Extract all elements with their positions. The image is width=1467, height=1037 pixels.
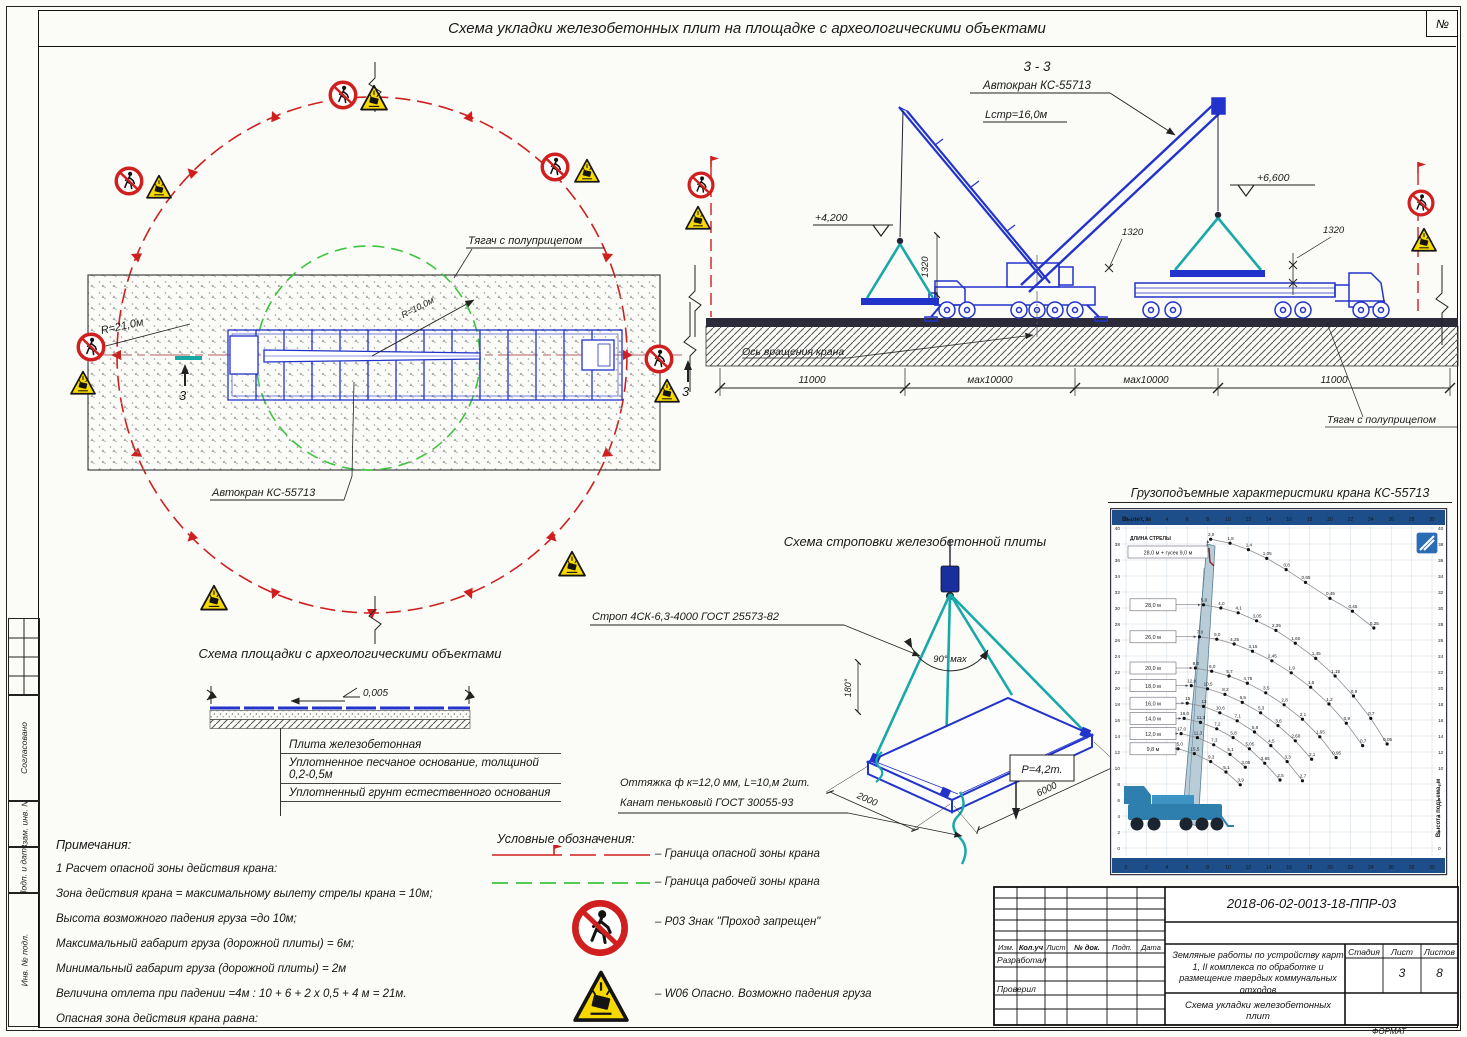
svg-text:0,95: 0,95: [1332, 750, 1341, 755]
svg-text:14: 14: [1266, 865, 1272, 871]
svg-text:2: 2: [1145, 865, 1148, 871]
svg-text:8: 8: [1206, 517, 1209, 523]
svg-text:20: 20: [1327, 865, 1333, 871]
note-item: Зона действия крана = максимальному выле…: [56, 888, 433, 913]
svg-text:3,15: 3,15: [1249, 644, 1258, 649]
truck-plan-label: Тягач с полуприцепом: [468, 235, 583, 247]
svg-text:+6,600: +6,600: [1257, 172, 1290, 184]
spreader-beam-right: [1170, 270, 1265, 277]
falling-load-sign: [575, 973, 627, 1021]
svg-text:2,5: 2,5: [1277, 773, 1284, 778]
svg-text:10,5: 10,5: [1204, 682, 1213, 687]
falling-load-sign: [147, 176, 171, 198]
svg-text:28,0 м: 28,0 м: [1145, 603, 1161, 609]
svg-text:12: 12: [1115, 750, 1121, 756]
svg-text:1,45: 1,45: [1312, 651, 1321, 656]
svg-text:1320: 1320: [1323, 225, 1345, 236]
svg-text:0: 0: [1125, 517, 1128, 523]
svg-text:0,8: 0,8: [1283, 562, 1290, 567]
crane-elevation: [899, 98, 1225, 321]
legend-item-fall: – W06 Опасно. Возможно падения груза: [655, 988, 872, 1000]
svg-text:18: 18: [1438, 702, 1444, 708]
soil-layer: [210, 720, 470, 729]
sheet-label: Лист: [1383, 947, 1421, 957]
svg-text:2,45: 2,45: [1268, 654, 1277, 659]
svg-text:1,60: 1,60: [1291, 636, 1300, 641]
svg-text:6,5: 6,5: [1240, 695, 1247, 700]
svg-text:6,0: 6,0: [1209, 664, 1216, 669]
chart-logo-icon: [1416, 532, 1438, 554]
svg-text:16: 16: [1438, 718, 1444, 724]
hoist-line-left: [900, 111, 903, 237]
danger-tick: [602, 249, 615, 262]
dim-6000-label: 6000: [1035, 780, 1059, 799]
svg-text:2,1: 2,1: [1309, 752, 1316, 757]
legend-item-work: – Граница рабочей зоны крана: [655, 876, 820, 888]
layer-slab: Плита железобетонная: [281, 736, 561, 754]
load-chart: Вылет, м ДЛИНА СТРЕЛЫ Высота подъема, м …: [1110, 508, 1448, 876]
svg-text:1320: 1320: [920, 256, 931, 278]
semitrailer-elevation: [1135, 273, 1389, 318]
truck-elev-label: Тягач с полуприцепом: [1327, 414, 1436, 426]
svg-text:18,0 м: 18,0 м: [1145, 684, 1161, 690]
falling-load-sign: [1412, 229, 1436, 251]
svg-text:12,0 м: 12,0 м: [1145, 732, 1161, 738]
svg-text:14: 14: [1266, 517, 1272, 523]
end-mark-left: [207, 686, 211, 704]
slope-mark: 0,005: [291, 688, 388, 701]
svg-text:5,1: 5,1: [1223, 765, 1230, 770]
note-item: Высота возможного падения груза =до 10м;: [56, 913, 433, 938]
sidebar-item-inv-podl: Инв. № подл.: [8, 892, 40, 1027]
svg-text:1,9: 1,9: [1289, 666, 1296, 671]
svg-text:9,3: 9,3: [1208, 754, 1215, 759]
svg-text:24: 24: [1438, 654, 1444, 660]
svg-text:15: 15: [1185, 696, 1191, 701]
guy-label: Оттяжка ф к=12,0 мм, L=10,м 2шт.: [620, 777, 810, 789]
danger-tick: [184, 531, 198, 545]
sidebar-item-soglasovano: Согласовано: [8, 694, 40, 802]
svg-text:22: 22: [1115, 670, 1121, 676]
svg-text:7,1: 7,1: [1234, 714, 1241, 719]
svg-text:0,45: 0,45: [1326, 591, 1335, 596]
developed-label: Разработал: [997, 955, 1047, 965]
svg-text:32: 32: [1115, 590, 1121, 596]
svg-text:12,0: 12,0: [1187, 678, 1196, 683]
chart-footer-bar: [1112, 858, 1445, 873]
svg-text:20,0 м: 20,0 м: [1145, 666, 1161, 672]
sling-angle-label: 90° мах: [933, 654, 968, 665]
svg-text:0,7: 0,7: [1360, 738, 1367, 743]
svg-text:14: 14: [1438, 734, 1444, 740]
svg-text:мах10000: мах10000: [967, 375, 1013, 386]
sidebar-item-podp-data: Подп. и дата: [8, 846, 40, 894]
rope-label: Канат пеньковый ГОСТ 30055-93: [620, 797, 794, 809]
number-label: №: [1436, 17, 1449, 31]
svg-text:2,1: 2,1: [1300, 712, 1307, 717]
number-box: №: [1426, 11, 1458, 37]
svg-text:2,60: 2,60: [1291, 734, 1300, 739]
svg-text:1,05: 1,05: [1263, 551, 1272, 556]
svg-text:11000: 11000: [1320, 375, 1348, 386]
svg-text:4,1: 4,1: [1236, 606, 1243, 611]
sand-layer: [210, 711, 470, 720]
svg-text:26: 26: [1388, 865, 1394, 871]
svg-text:10,6: 10,6: [1216, 706, 1225, 711]
svg-text:38: 38: [1115, 542, 1121, 548]
svg-text:22: 22: [1348, 865, 1354, 871]
elevation-mark-right: +6,600: [1230, 172, 1315, 196]
elev-crane-label: Автокран КС-55713: [982, 80, 1092, 92]
section-title: 3 - 3: [1023, 59, 1051, 74]
svg-text:26: 26: [1388, 517, 1394, 523]
no-walk-sign: [575, 903, 624, 952]
sheet-title-band: Схема укладки железобетонных плит на пло…: [38, 10, 1456, 47]
svg-text:30: 30: [1429, 865, 1435, 871]
col-ndok: № док.: [1067, 943, 1107, 952]
page-title: Схема укладки железобетонных плит на пло…: [448, 20, 1046, 37]
col-podp: Подп.: [1107, 943, 1137, 952]
layer-sand: Уплотненное песчаное основание, толщиной…: [281, 754, 561, 784]
svg-text:4,75: 4,75: [1243, 676, 1252, 681]
sidebar-item-vzam-inv: Взам. инв. №: [8, 800, 40, 848]
svg-text:5,8: 5,8: [1230, 730, 1237, 735]
danger-tick: [546, 531, 560, 545]
stage-label: Стадия: [1345, 947, 1383, 957]
svg-text:5,7: 5,7: [1226, 669, 1233, 674]
hook-block: [941, 566, 959, 592]
svg-text:+4,200: +4,200: [815, 212, 848, 224]
no-walk-sign: [78, 334, 104, 360]
svg-text:1,2: 1,2: [1326, 697, 1333, 702]
doc-number: 2018-06-02-0013-18-ППР-03: [1165, 896, 1458, 911]
falling-load-sign: [559, 552, 585, 576]
svg-text:12: 12: [1246, 865, 1252, 871]
svg-text:7,3: 7,3: [1211, 738, 1218, 743]
svg-text:1,4: 1,4: [1246, 542, 1253, 547]
svg-text:P=4,2т.: P=4,2т.: [1021, 764, 1062, 776]
svg-text:0: 0: [1117, 846, 1120, 852]
elevation-view: 3 - 3 Автокран КС-55713 Lстр=16,0м +4,20…: [685, 55, 1462, 445]
svg-text:16,0: 16,0: [1180, 711, 1189, 716]
svg-text:18: 18: [1115, 702, 1121, 708]
svg-text:4,5: 4,5: [1268, 738, 1275, 743]
svg-text:40: 40: [1115, 526, 1121, 532]
falling-load-sign: [575, 160, 599, 182]
sheet-number: 3: [1383, 966, 1421, 980]
col-data: Дата: [1137, 943, 1165, 952]
svg-text:3,3: 3,3: [1284, 754, 1291, 759]
svg-text:24: 24: [1368, 517, 1374, 523]
note-item: Опасная зона действия крана равна:: [56, 1013, 433, 1037]
svg-text:14: 14: [1115, 734, 1121, 740]
svg-text:0,9: 0,9: [1344, 716, 1351, 721]
svg-text:0: 0: [1438, 846, 1441, 852]
danger-tick: [463, 588, 476, 601]
notes-title: Примечания:: [56, 838, 433, 863]
svg-text:5,8: 5,8: [1252, 725, 1259, 730]
svg-text:3,65: 3,65: [1261, 756, 1270, 761]
boom-caption: ДЛИНА СТРЕЛЫ: [1130, 536, 1171, 542]
project-name: Земляные работы по устройству карт 1, II…: [1172, 950, 1344, 997]
svg-text:8,0: 8,0: [1193, 661, 1200, 666]
svg-text:36: 36: [1438, 558, 1444, 564]
svg-text:8: 8: [1438, 782, 1441, 788]
svg-text:0,05: 0,05: [1383, 737, 1392, 742]
svg-text:15,5: 15,5: [1190, 746, 1199, 751]
dim-180-label: 180°: [843, 678, 853, 697]
svg-text:2,8: 2,8: [1281, 698, 1288, 703]
svg-text:мах10000: мах10000: [1123, 375, 1169, 386]
svg-text:16: 16: [1286, 865, 1292, 871]
no-walk-sign: [116, 168, 142, 194]
format-label: ФОРМАТ: [1372, 1027, 1406, 1036]
svg-text:17,0: 17,0: [1177, 726, 1186, 731]
svg-text:2: 2: [1117, 830, 1120, 836]
note-item: Минимальный габарит груза (дорожной плит…: [56, 963, 433, 988]
svg-text:6: 6: [1186, 517, 1189, 523]
break-mark-left: [689, 265, 701, 337]
rotation-axis-label: Ось вращения крана: [742, 346, 844, 358]
sling-scheme: 90° мах 180° 2000 6000 P=4,2т. Строп 4СК…: [590, 530, 1110, 870]
drawing-sheet: Схема укладки железобетонных плит на пло…: [0, 0, 1467, 1037]
svg-text:38: 38: [1438, 542, 1444, 548]
svg-text:6: 6: [1438, 798, 1441, 804]
svg-text:0: 0: [1125, 865, 1128, 871]
svg-text:24: 24: [1368, 865, 1374, 871]
svg-text:5,0: 5,0: [1214, 632, 1221, 637]
svg-text:12: 12: [1438, 750, 1444, 756]
svg-text:18: 18: [1307, 865, 1313, 871]
svg-text:2,35: 2,35: [1272, 623, 1281, 628]
legend-item-danger: – Граница опасной зоны крана: [655, 848, 820, 860]
svg-text:2,0: 2,0: [1208, 532, 1215, 537]
svg-text:3,9: 3,9: [1238, 778, 1245, 783]
strop-label: Строп 4СК-6,3-4000 ГОСТ 25573-82: [592, 611, 779, 623]
legend-symbols: [490, 845, 660, 1035]
svg-text:3,6: 3,6: [1275, 718, 1282, 723]
svg-text:0,25: 0,25: [1370, 621, 1379, 626]
svg-text:26,0 м: 26,0 м: [1145, 635, 1161, 641]
no-walk-sign: [689, 173, 713, 197]
note-item: Максимальный габарит груза (дорожной пли…: [56, 938, 433, 963]
col-list: Лист: [1045, 943, 1067, 952]
svg-text:30: 30: [1429, 517, 1435, 523]
elevation-mark-left: +4,200: [813, 212, 893, 236]
svg-text:3,05: 3,05: [1253, 614, 1262, 619]
svg-text:40: 40: [1438, 526, 1444, 532]
chart-header-bar: [1112, 510, 1445, 525]
boom-length-label: Lстр=16,0м: [985, 109, 1048, 121]
danger-tick: [184, 165, 198, 179]
svg-text:1,5: 1,5: [1308, 680, 1315, 685]
dim-1320-mid: 1320: [1105, 227, 1144, 272]
svg-text:20: 20: [1115, 686, 1121, 692]
no-walk-sign: [646, 346, 672, 372]
svg-text:22: 22: [1438, 670, 1444, 676]
svg-text:36: 36: [1115, 558, 1121, 564]
no-walk-sign: [330, 82, 356, 108]
svg-text:10: 10: [1225, 517, 1231, 523]
svg-text:11000: 11000: [798, 375, 826, 386]
svg-text:3,5: 3,5: [1263, 686, 1270, 691]
svg-text:4: 4: [1165, 517, 1168, 523]
svg-text:20: 20: [1438, 686, 1444, 692]
svg-text:26: 26: [1115, 638, 1121, 644]
svg-text:11,3: 11,3: [1197, 715, 1206, 720]
svg-text:24: 24: [1115, 654, 1121, 660]
svg-text:4: 4: [1165, 865, 1168, 871]
svg-text:8: 8: [1206, 865, 1209, 871]
site-area: [88, 275, 660, 470]
svg-text:0,7: 0,7: [1368, 711, 1375, 716]
svg-text:28: 28: [1438, 622, 1444, 628]
falling-load-sign: [686, 207, 710, 229]
svg-text:2: 2: [1145, 517, 1148, 523]
svg-text:16: 16: [1286, 517, 1292, 523]
svg-text:1320: 1320: [1122, 227, 1144, 238]
no-walk-sign: [1409, 191, 1433, 215]
svg-text:5,3: 5,3: [1258, 706, 1265, 711]
svg-text:30: 30: [1115, 606, 1121, 612]
svg-text:26: 26: [1438, 638, 1444, 644]
svg-text:11,3: 11,3: [1194, 730, 1203, 735]
svg-text:2: 2: [1438, 830, 1441, 836]
svg-text:0,005: 0,005: [363, 688, 388, 699]
svg-text:8,2: 8,2: [1222, 687, 1229, 692]
svg-text:1,15: 1,15: [1331, 669, 1340, 674]
sheets-label: Листов: [1421, 947, 1458, 957]
svg-text:9,8 м: 9,8 м: [1147, 747, 1160, 753]
svg-text:3,05: 3,05: [1241, 760, 1250, 765]
legend-item-nowalk: – Р03 Знак "Проход запрещен": [655, 916, 820, 928]
load-chart-title: Грузоподъемные характеристики крана КС-5…: [1108, 486, 1452, 503]
sheets-total: 8: [1421, 966, 1458, 980]
note-item: Величина отлета при падении =4м : 10 + 6…: [56, 988, 433, 1013]
svg-text:6: 6: [1117, 798, 1120, 804]
dimension-chain: 11000 мах10000 мах10000 11000: [715, 368, 1455, 396]
col-izm: Изм.: [995, 943, 1017, 952]
svg-text:10: 10: [1438, 766, 1444, 772]
checked-label: Проверил: [997, 984, 1036, 994]
svg-text:20: 20: [1327, 517, 1333, 523]
svg-text:1,65: 1,65: [1316, 730, 1325, 735]
svg-text:6: 6: [1186, 865, 1189, 871]
break-mark-bottom: [369, 596, 381, 644]
spreader-beam-left: [861, 298, 939, 305]
svg-text:1,8: 1,8: [1227, 536, 1234, 541]
svg-text:4,25: 4,25: [1230, 637, 1239, 642]
svg-text:14,0 м: 14,0 м: [1145, 717, 1161, 723]
svg-text:10: 10: [1115, 766, 1121, 772]
svg-text:30: 30: [1438, 606, 1444, 612]
end-mark-right: [465, 686, 469, 704]
svg-text:5,0: 5,0: [1201, 598, 1208, 603]
layer-soil: Уплотненный грунт естественного основани…: [281, 784, 561, 802]
svg-text:28: 28: [1409, 865, 1415, 871]
svg-text:0,45: 0,45: [1348, 604, 1357, 609]
svg-text:34: 34: [1438, 574, 1444, 580]
rail-strip: [706, 318, 1458, 327]
svg-text:32: 32: [1438, 590, 1444, 596]
notes-block: Примечания: 1 Расчет опасной зоны действ…: [56, 838, 433, 1037]
svg-text:28: 28: [1115, 622, 1121, 628]
note-item: 1 Расчет опасной зоны действия крана:: [56, 863, 433, 888]
svg-text:13: 13: [1201, 699, 1207, 704]
svg-text:0,65: 0,65: [1302, 575, 1311, 580]
svg-text:2,7: 2,7: [1300, 774, 1307, 779]
crane-plan-label: Автокран КС-55713: [211, 487, 316, 499]
dim-2000-label: 2000: [854, 790, 879, 809]
platform-section: 0,005: [195, 640, 605, 740]
legend-title: Условные обозначения:: [497, 832, 635, 846]
svg-text:3: 3: [179, 388, 187, 403]
svg-text:28,0 м + гусек 9,0 м: 28,0 м + гусек 9,0 м: [1144, 551, 1193, 557]
svg-text:18: 18: [1307, 517, 1313, 523]
svg-text:16: 16: [1115, 718, 1121, 724]
svg-text:5,1: 5,1: [1227, 747, 1234, 752]
svg-text:8: 8: [1117, 782, 1120, 788]
sidebar-grid: [8, 618, 40, 696]
svg-text:0,9: 0,9: [1351, 689, 1358, 694]
svg-text:10: 10: [1225, 865, 1231, 871]
svg-text:34: 34: [1115, 574, 1121, 580]
svg-text:28: 28: [1409, 517, 1415, 523]
svg-text:16,0 м: 16,0 м: [1145, 701, 1161, 707]
svg-text:22: 22: [1348, 517, 1354, 523]
svg-text:4,0: 4,0: [1218, 601, 1225, 606]
svg-text:7,2: 7,2: [1214, 722, 1221, 727]
falling-load-sign: [201, 586, 227, 610]
no-walk-sign: [542, 154, 568, 180]
sheet-title: Схема укладки железобетонных плит: [1172, 1000, 1344, 1022]
svg-text:4: 4: [1438, 814, 1441, 820]
svg-text:4: 4: [1117, 814, 1120, 820]
svg-text:5,05: 5,05: [1245, 742, 1254, 747]
col-koluch: Кол.уч: [1017, 943, 1045, 952]
svg-text:7,0: 7,0: [1197, 630, 1204, 635]
svg-text:12: 12: [1246, 517, 1252, 523]
sling-right: [1175, 218, 1261, 270]
layer-list: Плита железобетонная Уплотненное песчано…: [281, 736, 561, 802]
